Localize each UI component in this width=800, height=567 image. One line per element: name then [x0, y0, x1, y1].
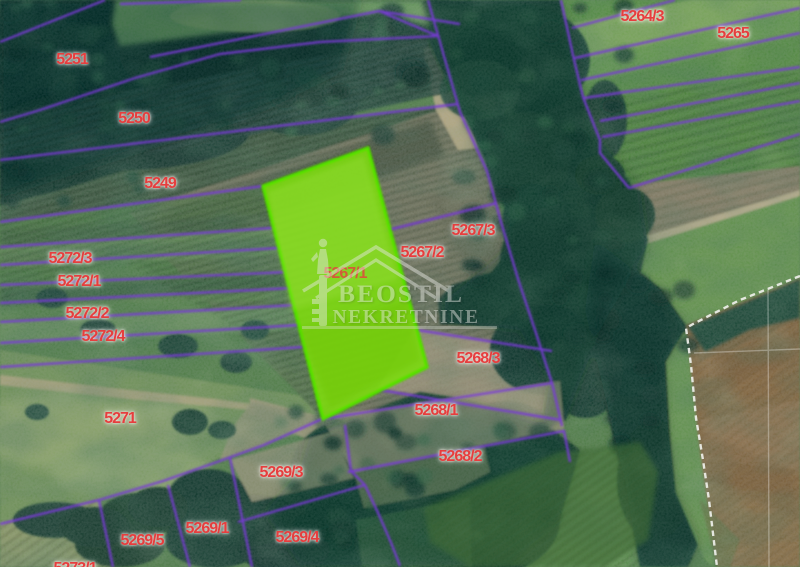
svg-text:5249: 5249 [144, 175, 177, 192]
svg-text:5267/3: 5267/3 [452, 222, 496, 239]
svg-text:5272/3: 5272/3 [49, 250, 93, 267]
svg-text:5271: 5271 [104, 410, 137, 427]
svg-text:5272/4: 5272/4 [82, 328, 126, 345]
svg-text:5272/1: 5272/1 [58, 273, 102, 290]
svg-text:5268/1: 5268/1 [415, 402, 459, 419]
svg-text:5268/3: 5268/3 [457, 350, 501, 367]
svg-text:5269/1: 5269/1 [186, 520, 230, 537]
svg-text:BEOSTIL: BEOSTIL [338, 279, 464, 308]
svg-text:5269/4: 5269/4 [276, 529, 320, 546]
svg-text:5272/2: 5272/2 [66, 305, 110, 322]
svg-text:NEKRETNINE: NEKRETNINE [332, 307, 479, 328]
svg-text:5250: 5250 [118, 110, 151, 127]
svg-text:5273/1: 5273/1 [54, 560, 98, 567]
svg-text:5265: 5265 [717, 25, 750, 42]
svg-text:5268/2: 5268/2 [439, 448, 483, 465]
svg-text:5251: 5251 [56, 51, 89, 68]
svg-text:5267/2: 5267/2 [401, 244, 445, 261]
svg-text:5269/3: 5269/3 [260, 464, 304, 481]
svg-text:5264/3: 5264/3 [621, 8, 665, 25]
svg-text:5269/5: 5269/5 [121, 532, 165, 549]
